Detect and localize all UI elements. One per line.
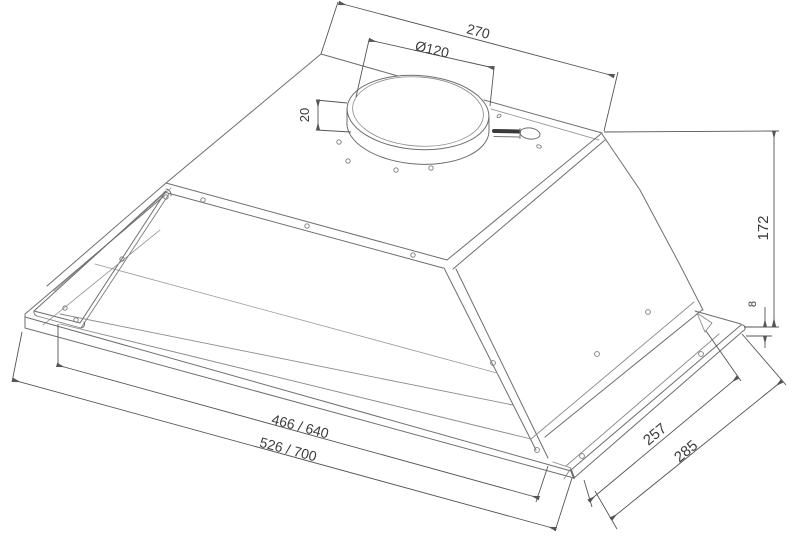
svg-text:Ø120: Ø120: [414, 37, 451, 60]
svg-text:172: 172: [755, 215, 772, 240]
svg-text:466 / 640: 466 / 640: [270, 411, 331, 442]
svg-text:526 / 700: 526 / 700: [258, 434, 319, 465]
svg-text:257: 257: [640, 420, 670, 449]
svg-text:20: 20: [297, 108, 312, 122]
svg-text:270: 270: [465, 20, 492, 42]
svg-text:8: 8: [747, 301, 759, 307]
svg-text:285: 285: [671, 437, 701, 466]
